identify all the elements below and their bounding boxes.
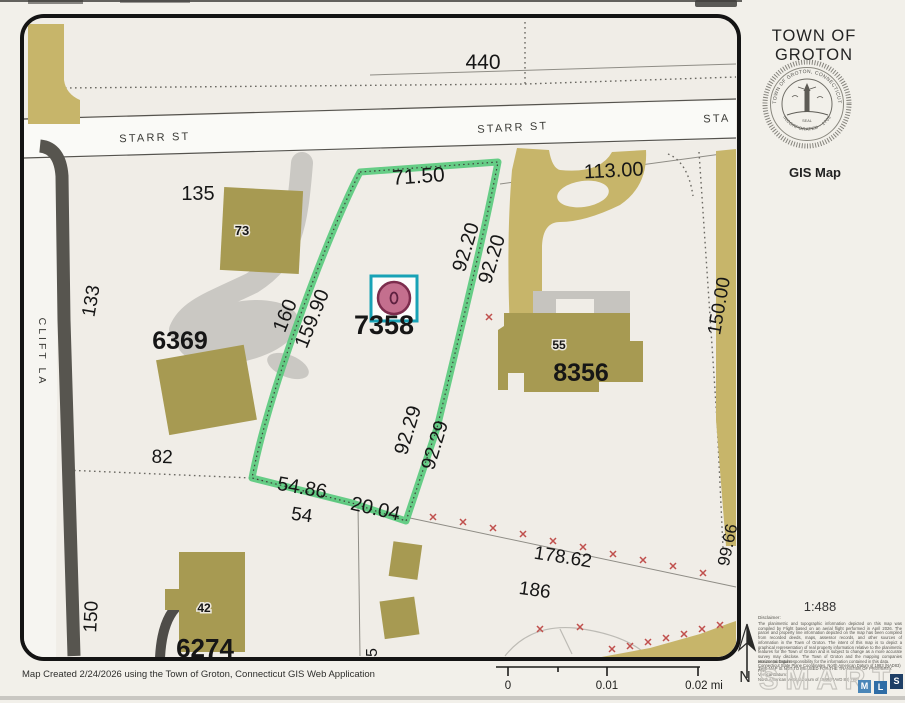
house-73: 73 — [235, 223, 249, 238]
lot-135: 135 — [181, 183, 214, 205]
map-created-note: Map Created 2/24/2026 using the Town of … — [22, 669, 375, 680]
map-canvas: 440 STARR ST STARR ST STA CLIFT LA 135 1… — [24, 18, 737, 657]
parcel-id-6274: 6274 — [176, 633, 234, 657]
outbuilding-2 — [380, 597, 420, 640]
parcel-id-8356: 8356 — [553, 359, 609, 387]
lot-150: 150 — [80, 600, 103, 633]
map-subtitle: GIS Map — [775, 165, 855, 180]
lot-45: 45 — [364, 648, 381, 657]
scan-artifact — [120, 0, 190, 3]
mls-square-l: L — [874, 681, 887, 694]
scale-ratio: 1:488 — [785, 599, 855, 614]
house-42: 42 — [197, 601, 211, 615]
lot-113-00: 113.00 — [583, 158, 644, 183]
street-clift-la: CLIFT LA — [36, 318, 48, 387]
street-starr-left: STARR ST — [119, 131, 191, 145]
building-42-wing — [165, 589, 181, 610]
smart-mls-watermark: SMART M L S — [757, 662, 905, 698]
outbuilding-1 — [389, 541, 423, 580]
seal-center-text: SEAL — [802, 119, 812, 123]
building-6369 — [156, 345, 257, 435]
street-starr-right: STA — [703, 113, 731, 126]
map-frame: 440 STARR ST STARR ST STA CLIFT LA 135 1… — [20, 14, 741, 661]
seal-lighthouse-icon — [787, 83, 828, 115]
mls-square-m: M — [858, 680, 871, 693]
house-55: 55 — [552, 338, 566, 352]
scale-tick-001: 0.01 — [596, 680, 618, 692]
scale-bar: 0 0.01 0.02 mi — [478, 658, 738, 698]
town-seal: TOWN OF GROTON, CONNECTICUT INCORPORATED… — [762, 58, 852, 154]
clift-la-roadway — [24, 152, 58, 657]
disclaimer-heading: Disclaimer: — [758, 615, 902, 620]
scan-artifact — [28, 0, 83, 4]
parcel-id-7358: 7358 — [354, 310, 414, 340]
building-73 — [220, 187, 303, 274]
scale-tick-002: 0.02 mi — [685, 680, 723, 692]
dim-71-50: 71.50 — [392, 163, 446, 190]
scan-artifact — [695, 0, 737, 7]
lot-82: 82 — [151, 447, 173, 469]
north-label: N — [739, 669, 751, 686]
seal-ring-bottom-text: INCORPORATED · 1705 — [782, 115, 832, 132]
lot-186: 186 — [518, 578, 552, 603]
lot-54: 54 — [290, 504, 314, 528]
lot-440: 440 — [465, 51, 500, 74]
mls-square-s: S — [890, 674, 903, 689]
scan-artifact — [0, 0, 742, 2]
scale-tick-0: 0 — [505, 680, 511, 692]
parcel-id-6369: 6369 — [152, 327, 208, 355]
